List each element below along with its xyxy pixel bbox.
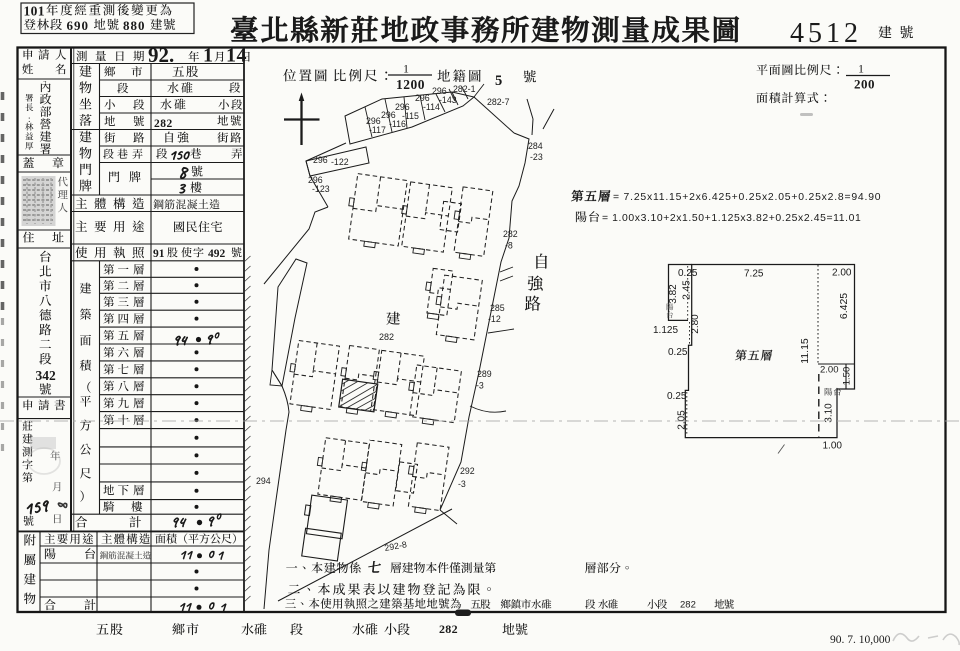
svg-text:14: 14: [226, 45, 247, 67]
svg-text:342: 342: [36, 368, 57, 383]
svg-text:3.82: 3.82: [668, 284, 679, 304]
svg-text:282: 282: [680, 600, 696, 611]
svg-text:880: 880: [123, 18, 146, 33]
svg-text:1.50: 1.50: [842, 367, 853, 386]
svg-text:0.25: 0.25: [678, 268, 698, 279]
svg-text:-123: -123: [312, 184, 330, 194]
svg-text:294: 294: [256, 476, 271, 486]
svg-text:282-1: 282-1: [453, 84, 476, 94]
svg-text:200: 200: [854, 77, 875, 92]
svg-text:1.125: 1.125: [653, 325, 678, 336]
svg-text:-3: -3: [476, 381, 484, 391]
svg-text::: :: [28, 114, 31, 124]
svg-text:-114: -114: [423, 102, 440, 112]
svg-text:0.25: 0.25: [668, 347, 688, 358]
svg-text:2.45: 2.45: [682, 280, 693, 300]
svg-text:-3: -3: [458, 479, 466, 489]
svg-text:-12: -12: [488, 314, 501, 324]
svg-text:-115: -115: [402, 111, 419, 121]
svg-text:282: 282: [503, 229, 518, 239]
svg-text:296: 296: [313, 155, 328, 165]
svg-text:91: 91: [153, 248, 165, 260]
svg-text:4512: 4512: [790, 18, 862, 49]
svg-text:6.425: 6.425: [838, 293, 850, 319]
svg-text:292: 292: [460, 466, 475, 476]
svg-text:282: 282: [379, 332, 394, 342]
svg-text:1: 1: [203, 45, 213, 67]
svg-text:1: 1: [858, 62, 864, 76]
svg-text:2.80: 2.80: [690, 314, 701, 334]
svg-text:-23: -23: [530, 152, 543, 162]
svg-text:7.25: 7.25: [744, 269, 764, 280]
svg-text:1: 1: [403, 62, 409, 76]
svg-text:-8: -8: [505, 241, 513, 251]
svg-text:-143: -143: [439, 95, 457, 105]
svg-text:2.05: 2.05: [677, 410, 688, 430]
svg-text:101: 101: [24, 4, 45, 19]
svg-text:289: 289: [477, 369, 492, 379]
svg-text:2.00: 2.00: [820, 365, 839, 376]
svg-text:90. 7. 10,000: 90. 7. 10,000: [830, 634, 891, 646]
svg-text:285: 285: [490, 303, 505, 313]
svg-text:282: 282: [154, 118, 173, 130]
svg-text:0.25: 0.25: [667, 391, 687, 402]
svg-text:1.00: 1.00: [823, 441, 843, 452]
svg-text:92.: 92.: [148, 43, 174, 67]
svg-text:282-7: 282-7: [487, 97, 510, 107]
svg-text:690: 690: [67, 18, 90, 33]
svg-text:-117: -117: [369, 125, 386, 135]
svg-text:= 7.25x11.15+2x6.425+0.25x2.05: = 7.25x11.15+2x6.425+0.25x2.05+0.25x2.8=…: [613, 192, 881, 203]
svg-text:5: 5: [495, 73, 502, 89]
svg-text:-122: -122: [331, 157, 349, 167]
svg-text:3.10: 3.10: [824, 403, 835, 423]
svg-text:2.00: 2.00: [832, 268, 852, 279]
svg-text:1200: 1200: [396, 77, 425, 92]
svg-text:= 1.00x3.10+2x1.50+1.125x3.82+: = 1.00x3.10+2x1.50+1.125x3.82+0.25x2.45=…: [602, 213, 861, 224]
svg-text:11.15: 11.15: [799, 338, 811, 364]
svg-text:492: 492: [208, 248, 226, 260]
svg-text:282: 282: [439, 622, 458, 636]
svg-text:284: 284: [528, 141, 543, 151]
